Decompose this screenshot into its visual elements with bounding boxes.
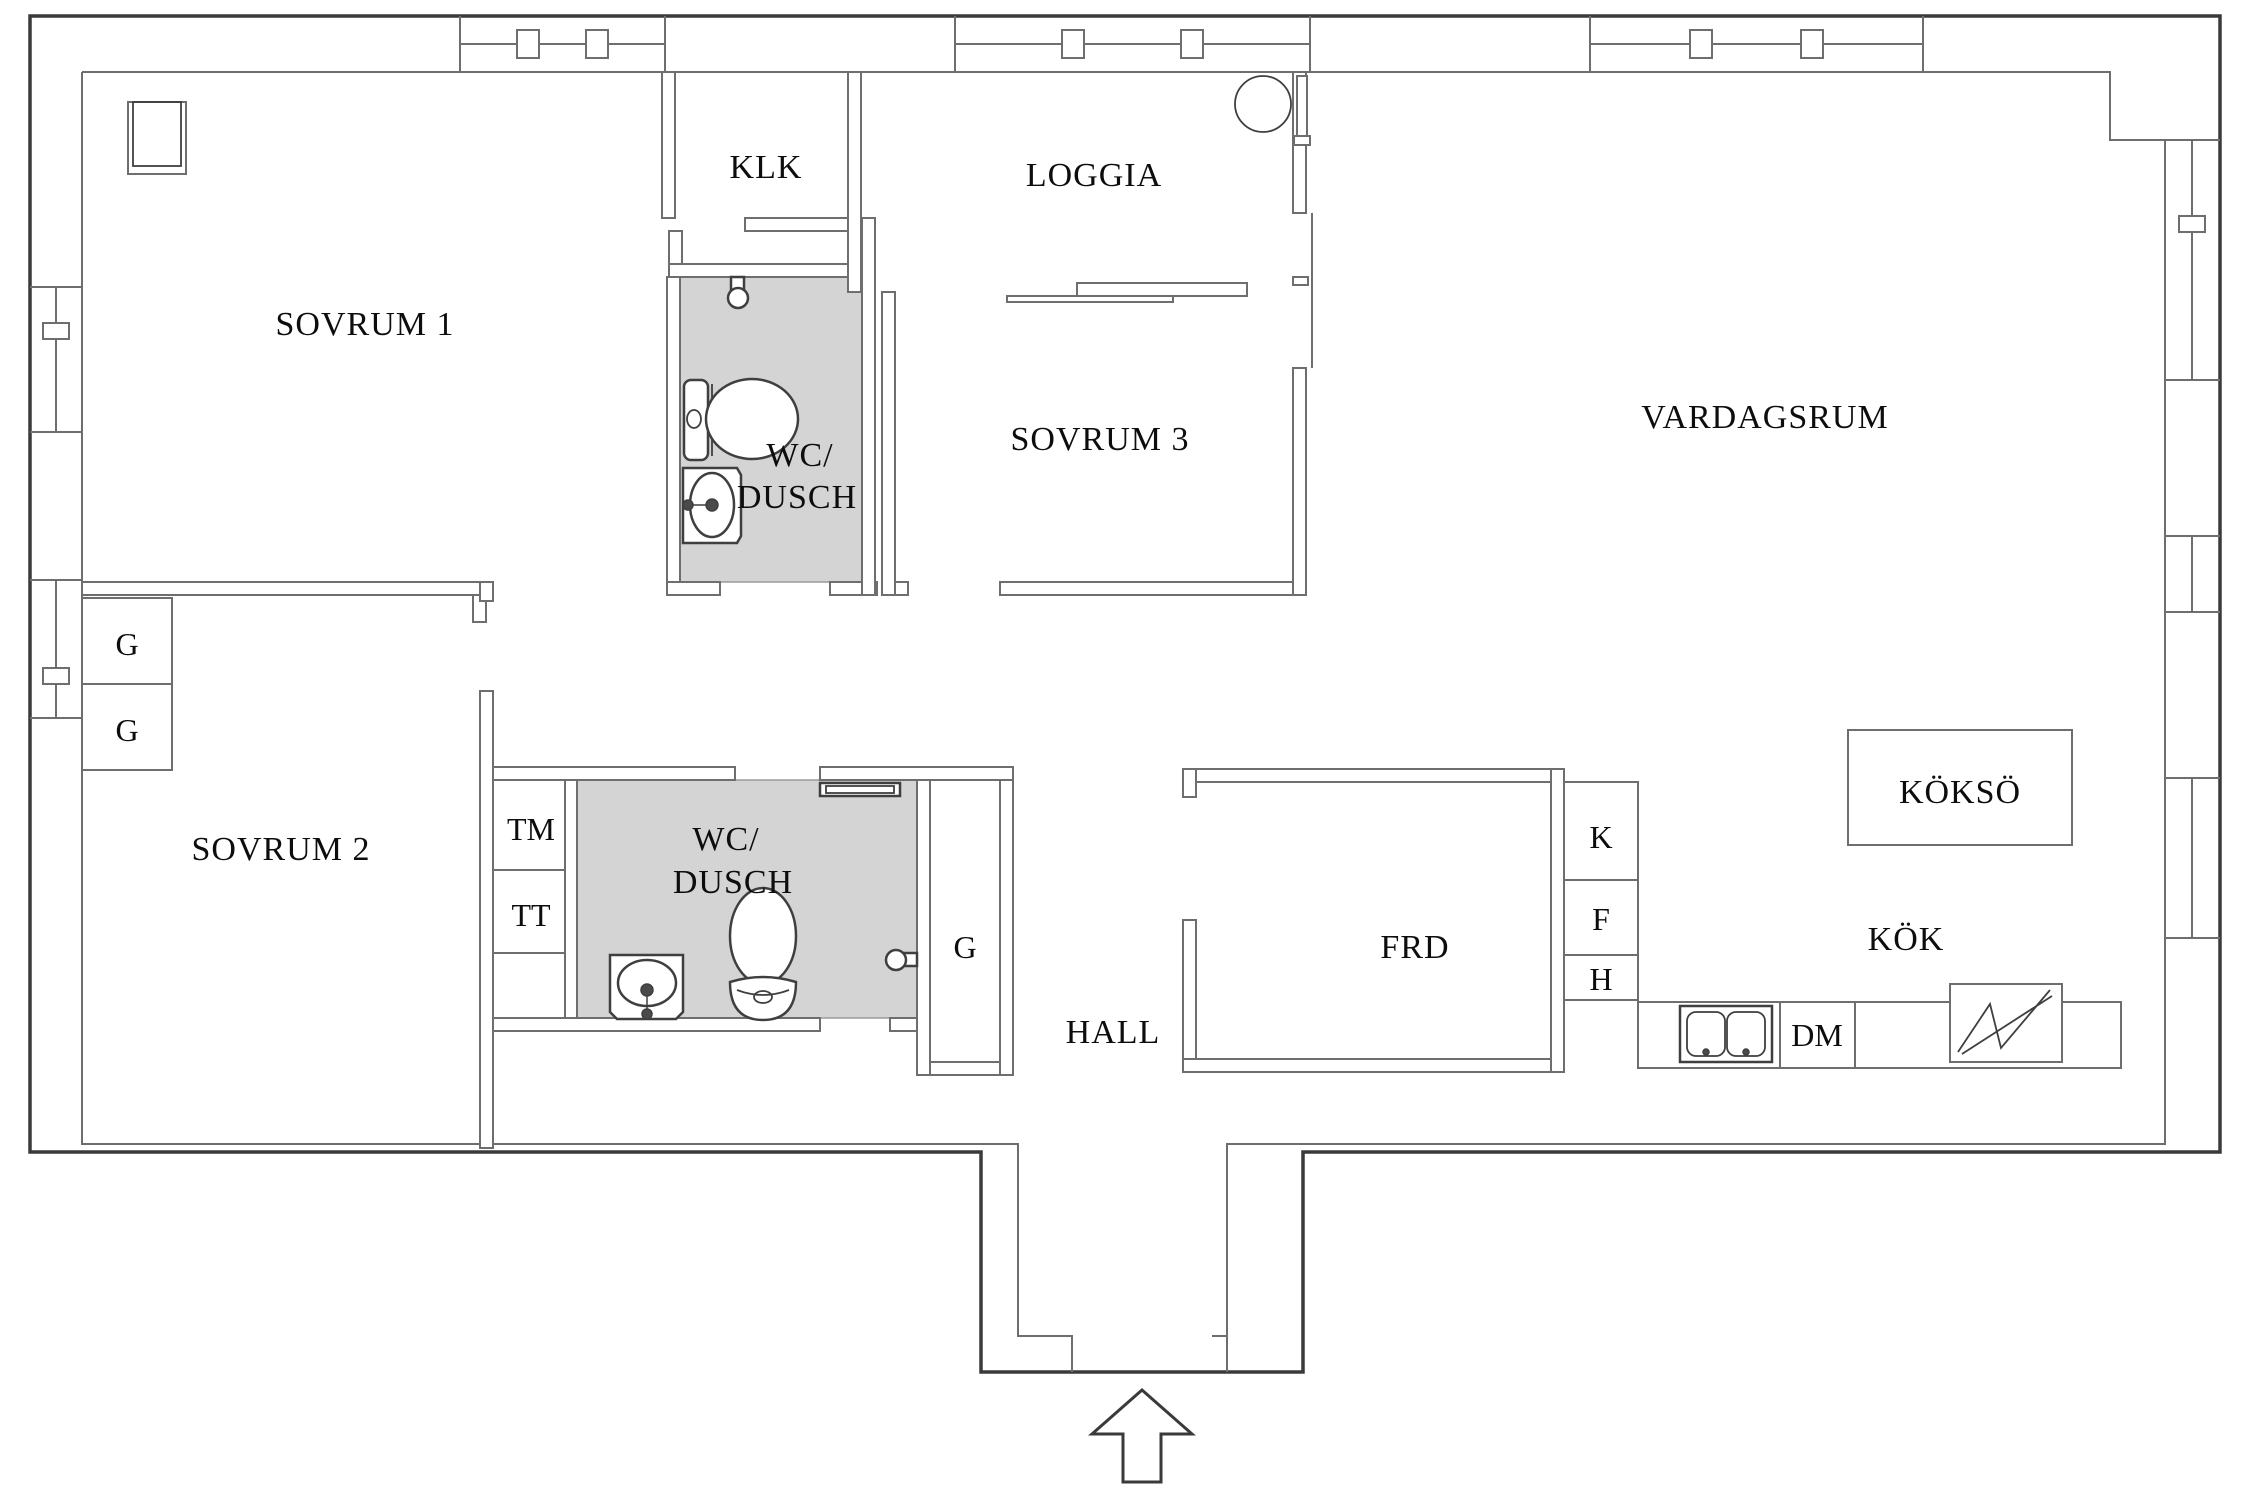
window-post-icon [517, 30, 539, 58]
wall-wc1-bottom-left [667, 582, 720, 595]
laundry-partition [565, 780, 577, 1018]
wall-sovrum2-right [480, 691, 493, 1148]
wall-frd-bottom [1183, 1059, 1564, 1072]
label-dm: DM [1791, 1017, 1843, 1053]
wall-connector [1293, 277, 1308, 285]
label-wc2-line2: DUSCH [673, 864, 793, 901]
wall-bath2-bottom-jamb [890, 1018, 917, 1031]
wall-sovrum1-klk [662, 72, 675, 218]
label-sovrum3: SOVRUM 3 [1011, 421, 1190, 458]
sliding-door-track [1297, 76, 1307, 136]
toilet-icon [730, 888, 796, 1020]
wall-bath2-top-left [493, 767, 735, 780]
window-right-vardagsrum [2165, 140, 2220, 380]
wall-sovrum3-left [882, 292, 895, 595]
label-klk: KLK [730, 149, 803, 186]
label-sovrum1: SOVRUM 1 [276, 306, 455, 343]
window-post-icon [1801, 30, 1823, 58]
wall-sovrum3-vardagsrum [1293, 368, 1306, 595]
wall-sovrum1-bottom [82, 582, 493, 595]
laundry-box-empty [493, 953, 565, 1018]
wall-gcloset-bottom [930, 1062, 1000, 1075]
window-handle-icon [43, 668, 69, 684]
wall-sovrum3-bottom [1000, 582, 1306, 595]
label-tm: TM [507, 811, 555, 847]
wall-frd-left-top [1183, 769, 1196, 797]
washbasin-icon [683, 468, 741, 543]
window-post-icon [586, 30, 608, 58]
sliding-door-stop [1294, 136, 1310, 145]
wall-klk-jamb [669, 231, 682, 264]
double-sink-icon [1680, 1006, 1772, 1062]
wall-sovrum2-right-top [480, 582, 493, 601]
wall-wc1-left [667, 277, 680, 582]
wall-klk-bottom [745, 218, 862, 231]
window-post-icon [1690, 30, 1712, 58]
window-top-vardagsrum [1590, 16, 1923, 72]
window-handle-icon [43, 323, 69, 339]
window-post-icon [1181, 30, 1203, 58]
label-wc1-line2: DUSCH [737, 479, 857, 516]
label-wc1-line1: WC/ [766, 437, 833, 474]
inner-wall-left [82, 72, 1072, 1372]
window-post-icon [1062, 30, 1084, 58]
label-loggia: LOGGIA [1026, 157, 1162, 194]
wall-gcloset-right [1000, 780, 1013, 1075]
round-table-icon [1235, 76, 1291, 132]
label-wc2-line1: WC/ [692, 821, 759, 858]
label-vardagsrum: VARDAGSRUM [1641, 399, 1888, 436]
window-right-small [2165, 536, 2220, 612]
wall-klk-loggia [848, 72, 861, 292]
wall-frd-left [1183, 920, 1196, 1072]
floor-plan: SOVRUM 1 KLK WC/ DUSCH LOGGIA SOVRUM 3 V… [0, 0, 2250, 1500]
label-g-hall: G [953, 929, 976, 965]
sliding-door-panel-2 [1007, 296, 1173, 302]
label-g-top: G [115, 626, 138, 662]
entrance-arrow [1092, 1390, 1192, 1482]
window-left-sovrum1 [30, 287, 82, 432]
sliding-door-panel-1 [1077, 283, 1247, 296]
label-hall: HALL [1066, 1014, 1161, 1051]
inner-wall-right [82, 72, 2165, 1372]
shower-head-icon [728, 277, 748, 308]
window-top-sovrum1 [460, 16, 665, 72]
wall-sovrum3-corner [895, 582, 908, 595]
label-kokso: KÖKSÖ [1899, 774, 2021, 811]
window-top-loggia [955, 16, 1310, 72]
washbasin-icon [610, 955, 683, 1019]
label-kok: KÖK [1868, 921, 1945, 958]
label-tt: TT [511, 897, 551, 933]
stove-icon [1950, 984, 2062, 1062]
kitchen-counter [1638, 984, 2121, 1068]
wall-wc1-top [669, 264, 875, 277]
label-sovrum2: SOVRUM 2 [192, 831, 371, 868]
wall-bath2-right [917, 780, 930, 1075]
shower-head-icon [886, 950, 917, 970]
wall-bath2-top-right [820, 767, 1013, 780]
label-g-bottom: G [115, 712, 138, 748]
ventilation-shaft-icon [128, 102, 186, 174]
label-frd: FRD [1380, 929, 1449, 966]
label-k: K [1589, 819, 1612, 855]
wall-frd-top [1183, 769, 1564, 782]
outer-wall [30, 16, 2220, 1372]
window-right-kok [2165, 778, 2220, 938]
window-handle-icon [2179, 216, 2205, 232]
shelf-icon [820, 783, 900, 796]
wall-frd-right [1551, 769, 1564, 1072]
label-h: H [1589, 961, 1612, 997]
window-left-sovrum2 [30, 580, 82, 718]
label-f: F [1592, 901, 1610, 937]
wall-wc1-right [862, 218, 875, 595]
